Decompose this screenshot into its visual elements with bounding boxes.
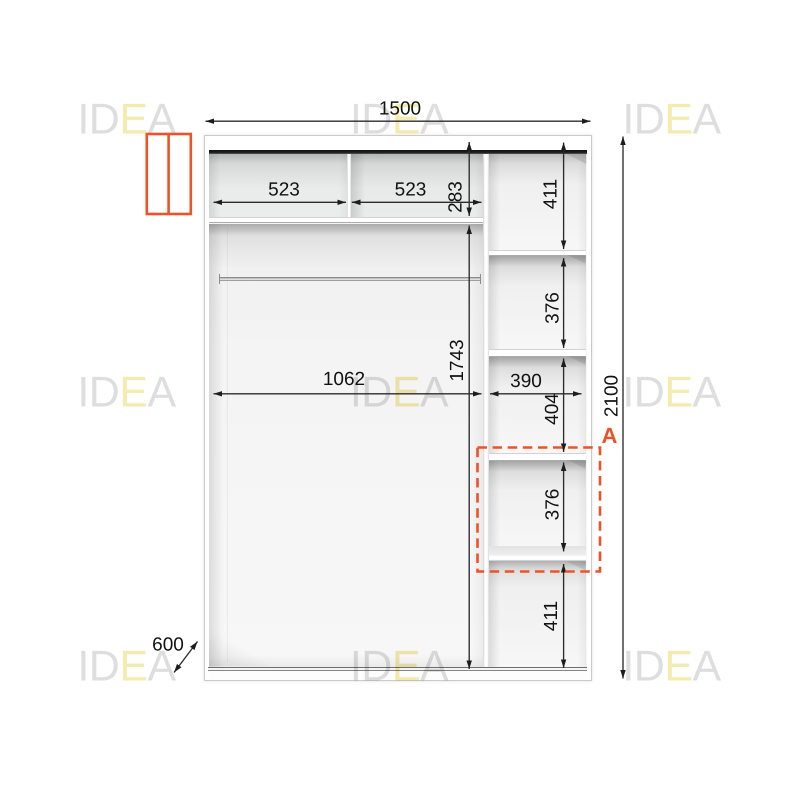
svg-text:523: 523 [268,180,300,201]
svg-text:376: 376 [543,489,564,521]
svg-text:A: A [602,423,618,448]
svg-text:283: 283 [446,181,467,213]
svg-text:2100: 2100 [602,375,623,417]
svg-text:1743: 1743 [447,339,468,381]
svg-text:600: 600 [152,635,184,656]
svg-text:404: 404 [542,393,563,425]
svg-text:411: 411 [541,601,562,631]
svg-text:1062: 1062 [323,369,365,390]
svg-text:1500: 1500 [379,99,421,120]
svg-text:376: 376 [543,292,564,324]
svg-text:523: 523 [395,180,427,201]
svg-text:411: 411 [541,179,562,209]
svg-text:390: 390 [510,371,542,392]
